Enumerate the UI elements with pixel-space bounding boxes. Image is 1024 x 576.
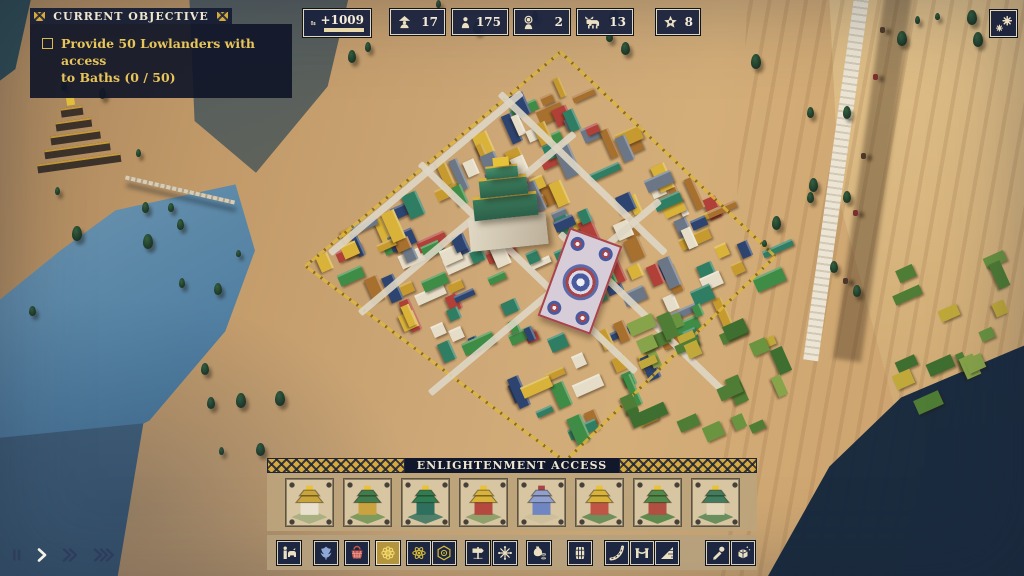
- road-icon: [609, 545, 625, 561]
- money-bag-button[interactable]: [527, 541, 551, 565]
- fastest-button[interactable]: [91, 546, 117, 564]
- monk-counter: 2: [514, 9, 570, 35]
- build-toolbar: [267, 535, 757, 570]
- objective-body: Provide 50 Lowlanders with access to Bat…: [30, 24, 292, 98]
- mini-building-icon: [693, 480, 738, 525]
- building-thumbnail[interactable]: [518, 479, 565, 526]
- mini-building-icon: [345, 480, 390, 525]
- prestige-counter: 8: [656, 9, 700, 35]
- ornament-band: [620, 459, 756, 472]
- lowlander-icon: [397, 15, 412, 30]
- bridge-icon: [634, 545, 650, 561]
- monk-value: 2: [555, 15, 563, 29]
- road-button[interactable]: [605, 541, 629, 565]
- objective-panel: CURRENT OBJECTIVE Provide 50 Lowlanders …: [30, 8, 292, 98]
- build-panel-header: ENLIGHTENMENT ACCESS: [267, 458, 757, 473]
- building-thumbnail[interactable]: [634, 479, 681, 526]
- game-viewport: CURRENT OBJECTIVE Provide 50 Lowlanders …: [0, 0, 1024, 576]
- yak-icon: [584, 15, 601, 30]
- coins-icon: [310, 15, 317, 31]
- mini-building-icon: [635, 480, 680, 525]
- barrel-button[interactable]: [568, 541, 592, 565]
- mini-building-icon: [461, 480, 506, 525]
- weather-button[interactable]: [990, 10, 1017, 37]
- mandala-button[interactable]: [376, 541, 400, 565]
- money-value: +1009: [321, 14, 364, 26]
- honeycomb-button[interactable]: [432, 541, 456, 565]
- mini-building-icon: [577, 480, 622, 525]
- play-icon: [37, 548, 47, 562]
- building-thumbnail[interactable]: [344, 479, 391, 526]
- eyedropper-button[interactable]: [706, 541, 730, 565]
- pause-icon: [12, 548, 22, 562]
- snowflakes-icon: [993, 13, 1015, 35]
- blossom-icon: [497, 545, 513, 561]
- play-button[interactable]: [35, 546, 49, 564]
- worker-value: 175: [476, 15, 501, 29]
- bridge-button[interactable]: [630, 541, 654, 565]
- objective-title: CURRENT OBJECTIVE: [45, 10, 217, 23]
- basket-button[interactable]: [345, 541, 369, 565]
- incense-button[interactable]: [407, 541, 431, 565]
- lowlander-value: 17: [421, 15, 438, 29]
- building-thumbnail[interactable]: [286, 479, 333, 526]
- fast-forward-icon: [62, 548, 78, 562]
- worker-counter: 175: [452, 9, 508, 35]
- money-bag-icon: [531, 545, 547, 561]
- herbs-button[interactable]: [314, 541, 338, 565]
- incense-icon: [411, 545, 427, 561]
- objective-header: CURRENT OBJECTIVE: [30, 8, 232, 24]
- blossom-button[interactable]: [493, 541, 517, 565]
- yak-caravan-button[interactable]: [277, 541, 301, 565]
- prestige-value: 8: [685, 15, 693, 29]
- herbs-icon: [318, 545, 334, 561]
- fast-forward-button[interactable]: [60, 546, 80, 564]
- demolish-icon: [735, 545, 751, 561]
- money-progress-bar: [324, 28, 364, 32]
- barrel-icon: [572, 545, 588, 561]
- ornament-band: [268, 459, 404, 472]
- mini-building-icon: [403, 480, 448, 525]
- eyedropper-icon: [710, 545, 726, 561]
- honeycomb-icon: [436, 545, 452, 561]
- ramp-icon: [659, 545, 675, 561]
- signpost-icon: [470, 545, 486, 561]
- objective-checkbox: [42, 38, 53, 49]
- mini-building-icon: [519, 480, 564, 525]
- time-controls: [10, 546, 117, 564]
- prestige-star-icon: [663, 15, 678, 30]
- basket-icon: [349, 545, 365, 561]
- demolish-button[interactable]: [731, 541, 755, 565]
- yak-counter: 13: [577, 9, 633, 35]
- ramp-button[interactable]: [655, 541, 679, 565]
- objective-text: Provide 50 Lowlanders with access to Bat…: [61, 35, 282, 86]
- ornament-band: [34, 12, 45, 21]
- signpost-button[interactable]: [466, 541, 490, 565]
- ornament-band: [217, 12, 228, 21]
- mandala-icon: [380, 545, 396, 561]
- building-thumbnails: [267, 473, 757, 531]
- worker-icon: [459, 15, 472, 30]
- building-thumbnail[interactable]: [692, 479, 739, 526]
- mini-building-icon: [287, 480, 332, 525]
- building-thumbnail[interactable]: [460, 479, 507, 526]
- pause-button[interactable]: [10, 546, 24, 564]
- yak-caravan-icon: [281, 545, 297, 561]
- building-thumbnail[interactable]: [576, 479, 623, 526]
- yak-value: 13: [609, 15, 626, 29]
- fastest-icon: [93, 548, 115, 562]
- monk-icon: [521, 15, 536, 30]
- lowlander-counter: 17: [390, 9, 445, 35]
- building-thumbnail[interactable]: [402, 479, 449, 526]
- money-counter: +1009: [303, 9, 371, 37]
- build-panel-title: ENLIGHTENMENT ACCESS: [417, 459, 607, 472]
